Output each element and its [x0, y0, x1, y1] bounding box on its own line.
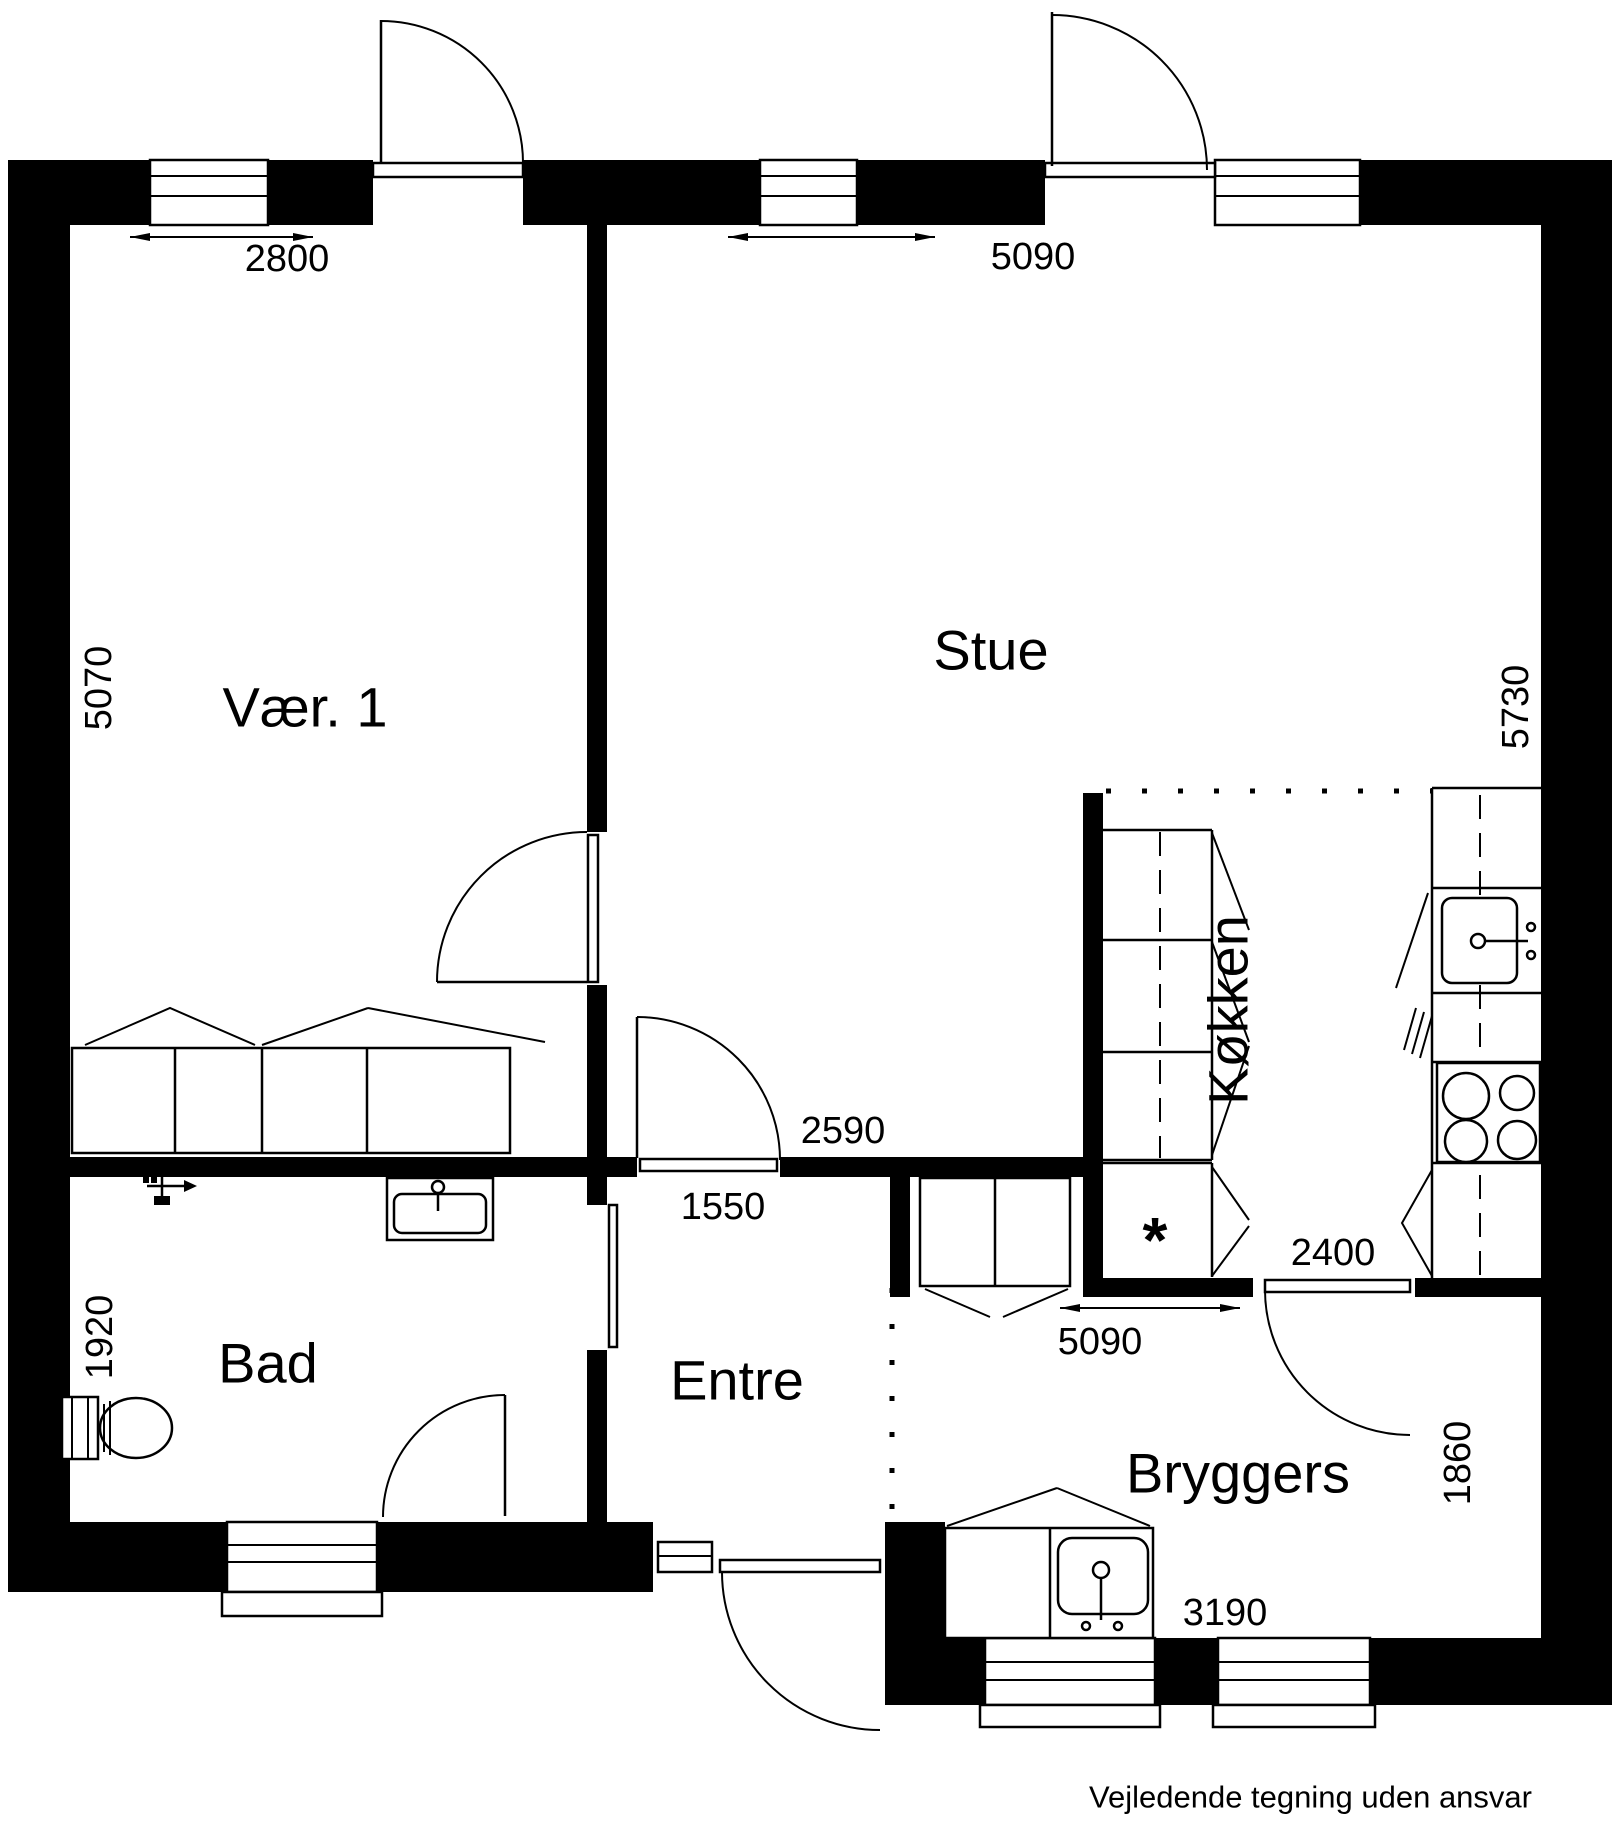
freezer-symbol: *: [1143, 1204, 1168, 1276]
wall-top-segment: [1360, 160, 1543, 225]
wall-below-freezer-closet: [1083, 1278, 1253, 1297]
room-label-bryggers: Bryggers: [1126, 1442, 1350, 1505]
wall-bad-entre-upper: [587, 1177, 607, 1205]
door-entre-stue: [637, 1017, 780, 1171]
wall-mid-horizontal-east: [780, 1157, 1083, 1177]
room-label-entre: Entre: [670, 1349, 804, 1412]
door-vaer1-exterior: [373, 20, 523, 177]
window-vaer1-north: [150, 160, 268, 225]
wall-bad-entre-lower: [587, 1350, 607, 1522]
door-stue-exterior: [1045, 12, 1215, 177]
dim-label-1860: 1860: [1437, 1421, 1479, 1506]
wall-kitchen-peninsula: [1083, 793, 1103, 1297]
wall-vaer1-stue-upper: [587, 225, 607, 832]
burner: [1443, 1073, 1489, 1119]
dim-label-5730: 5730: [1495, 665, 1537, 750]
dim-label-2800: 2800: [245, 238, 330, 280]
disclaimer-text: Vejledende tegning uden ansvar: [1089, 1780, 1532, 1815]
window-bad-south: [222, 1522, 382, 1616]
dim-label-2400: 2400: [1291, 1232, 1376, 1274]
wardrobe-door-mark: [85, 1008, 255, 1045]
unit-door-mark: [947, 1488, 1057, 1526]
wall-bryggers-west: [885, 1522, 945, 1705]
wall-bryggers-bottom-segment: [945, 1638, 985, 1705]
dim-label-5090-top: 5090: [991, 236, 1076, 278]
room-label-koekken: Køkken: [1197, 915, 1260, 1105]
bad-sink: [387, 1178, 493, 1240]
wall-bottom-left-segment: [8, 1522, 227, 1592]
dim-label-5070: 5070: [78, 646, 120, 731]
dim-label-5090-bryggers: 5090: [1058, 1321, 1143, 1363]
burner: [1445, 1120, 1487, 1162]
dim-label-1550: 1550: [681, 1186, 766, 1228]
interior-walls: [70, 225, 1541, 1522]
dim-label-1920: 1920: [79, 1295, 121, 1380]
wall-top-segment: [857, 160, 1045, 225]
closet-door-mark: [1212, 1167, 1249, 1220]
wall-left: [8, 160, 70, 1592]
door-entrance: [720, 1560, 880, 1730]
room-label-vaer1: Vær. 1: [223, 676, 388, 739]
wall-bryggers-bottom-segment: [1370, 1638, 1541, 1705]
wall-top-segment: [268, 160, 373, 225]
wardrobe-door-mark: [368, 1008, 545, 1042]
cabinet-door-mark: [1402, 1170, 1432, 1276]
window-stue-north-east: [1215, 160, 1360, 225]
dishwasher-hatch: [1404, 1008, 1432, 1058]
floor-plan-drawing: Vær. 1 Stue Køkken Bad Entre Bryggers 28…: [0, 0, 1614, 1830]
shower-fixture: [143, 1177, 197, 1205]
burner: [1500, 1076, 1534, 1110]
cabinet-door-mark: [1396, 893, 1428, 988]
wardrobe-bryggers: [920, 1178, 1070, 1317]
dim-label-2590: 2590: [801, 1110, 886, 1152]
burner: [1498, 1121, 1536, 1159]
dim-line-5090-bryggers: [1060, 1304, 1240, 1312]
wall-koekken-bryggers-east: [1415, 1278, 1541, 1297]
window-stue-north: [760, 160, 857, 225]
dim-line-5090-top: [728, 233, 935, 241]
wall-bottom-left-segment: [377, 1522, 653, 1592]
wardrobe-vaer1: [72, 1008, 545, 1153]
freezer-closet: [1103, 1163, 1249, 1277]
closet-door-mark: [1212, 1226, 1249, 1276]
door-bad: [383, 1205, 617, 1517]
toilet: [62, 1397, 172, 1459]
kitchen-sink: [1442, 898, 1535, 983]
floor-plan-page: Vær. 1 Stue Køkken Bad Entre Bryggers 28…: [0, 0, 1614, 1830]
wall-top-segment: [523, 160, 760, 225]
wall-mid-horizontal-west: [70, 1157, 637, 1177]
window-bryggers-south-west: [980, 1638, 1160, 1727]
room-label-bad: Bad: [218, 1332, 318, 1395]
wardrobe-door-mark: [925, 1289, 990, 1317]
bryggers-sink-unit: [945, 1488, 1153, 1638]
cooktop: [1437, 1063, 1540, 1162]
wall-right: [1541, 160, 1612, 1705]
kitchen-east-counter: [1396, 788, 1541, 1278]
window-entre-sidelight: [658, 1542, 712, 1572]
wardrobe-door-mark: [1003, 1289, 1068, 1317]
wall-entre-bryggers-stub: [890, 1177, 910, 1297]
door-vaer1-interior: [437, 832, 598, 982]
window-bryggers-south-east: [1213, 1638, 1375, 1727]
wall-bryggers-bottom-segment: [1155, 1638, 1218, 1705]
dim-label-3190: 3190: [1183, 1592, 1268, 1634]
exterior-walls: [8, 160, 1612, 1705]
room-label-stue: Stue: [933, 619, 1048, 682]
door-koekken-bryggers: [1265, 1280, 1410, 1435]
wardrobe-door-mark: [262, 1008, 368, 1045]
wall-vaer1-stue-lower: [587, 985, 607, 1157]
